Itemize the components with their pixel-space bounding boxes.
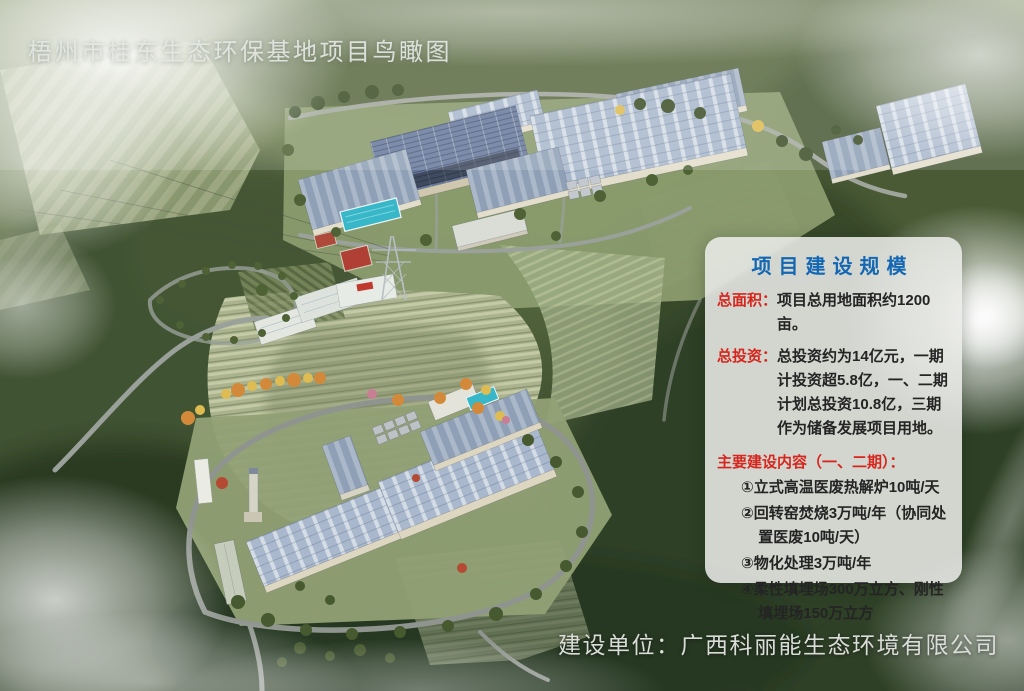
row-text: 总投资约为14亿元，一期计投资超5.8亿，一、二期计划总投资10.8亿，三期作为… [777,345,948,442]
row-label: 总面积： [717,289,777,338]
list-item: ①立式高温医废热解炉10吨/天 [741,476,948,500]
row-label: 总投资： [717,345,777,442]
row-text: 项目总用地面积约1200亩。 [777,289,948,338]
page-title: 梧州市桂东生态环保基地项目鸟瞰图 [28,32,452,67]
total-area-row: 总面积： 项目总用地面积约1200亩。 [717,289,948,338]
info-panel: 项目建设规模 总面积： 项目总用地面积约1200亩。 总投资： 总投资约为14亿… [705,237,962,583]
list-item: ③物化处理3万吨/年 [741,552,948,576]
construction-items: ①立式高温医废热解炉10吨/天 ②回转窑焚烧3万吨/年（协同处置医废10吨/天）… [717,476,948,626]
total-investment-row: 总投资： 总投资约为14亿元，一期计投资超5.8亿，一、二期计划总投资10.8亿… [717,345,948,442]
section-heading: 主要建设内容（一、二期）： [717,451,948,472]
list-item: ④柔性填埋场300万立方、刚性填埋场150万立方 [741,578,948,626]
list-item: ②回转窑焚烧3万吨/年（协同处置医废10吨/天） [741,502,948,550]
construction-unit-caption: 建设单位：广西科丽能生态环境有限公司 [558,626,999,660]
project-poster: 梧州市桂东生态环保基地项目鸟瞰图 项目建设规模 总面积： 项目总用地面积约120… [0,0,1024,691]
panel-title: 项目建设规模 [717,250,948,279]
